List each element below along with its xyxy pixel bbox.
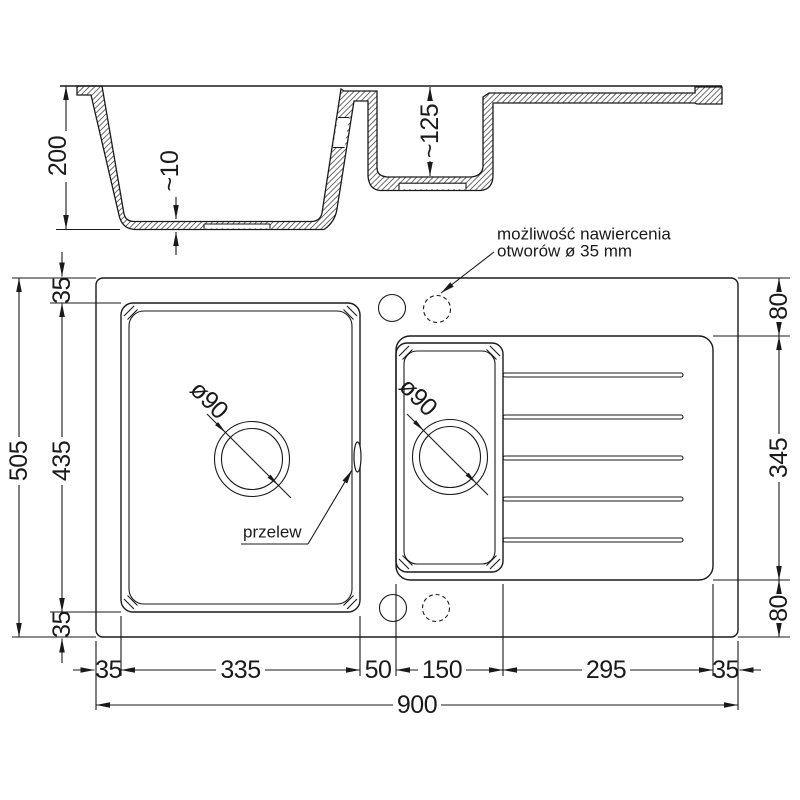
drill-note: możliwość nawiercenia otworów ø 35 mm <box>441 225 671 294</box>
dimension-rim-bottom: 35 <box>48 611 76 663</box>
dim-rim-bottom-label: 35 <box>48 611 76 638</box>
dimension-height-total: 505 <box>5 278 33 637</box>
dim-divider-width-label: 50 <box>365 656 392 684</box>
dimension-drainer-height: 345 <box>765 336 793 580</box>
dimension-bottom-thickness: ~10 <box>156 151 184 255</box>
dimension-drainer-width: 295 <box>503 656 713 684</box>
large-bowl-corner-facets <box>124 306 357 609</box>
dimension-small-bowl-width: 150 <box>396 656 503 684</box>
dimension-small-bowl-depth: ~125 <box>416 87 444 176</box>
dimension-large-bowl-width: 335 <box>121 656 360 684</box>
drill-note-line2: otworów ø 35 mm <box>497 242 632 261</box>
dim-rim-top-label: 35 <box>48 277 76 304</box>
dimensions-right: 80 345 80 <box>713 278 793 637</box>
faucet-hole-top <box>379 295 406 322</box>
section-small-drain-recess <box>399 183 466 189</box>
technical-drawing: 200 ~10 ~125 możliwość nawiercenia otwor… <box>0 0 800 800</box>
drainer-region: ø90 <box>393 336 713 580</box>
drainer-grooves <box>503 373 683 542</box>
large-drain-label: ø90 <box>184 375 233 424</box>
dimensions-left: 505 435 35 35 <box>5 252 121 663</box>
dim-small-bowl-depth-label: ~125 <box>416 104 444 158</box>
dimension-bowl-height: 435 <box>48 303 76 612</box>
dim-small-bowl-width-label: 150 <box>422 656 462 684</box>
drill-note-leader <box>441 252 494 293</box>
optional-hole-top <box>424 296 451 323</box>
faucet-hole-bottom <box>380 595 407 622</box>
dimension-right-bottom: 80 <box>765 580 793 637</box>
dim-width-total-label: 900 <box>397 691 437 719</box>
sink-outline <box>96 278 738 637</box>
sink-technical-drawing-canvas: 200 ~10 ~125 możliwość nawiercenia otwor… <box>0 0 800 800</box>
optional-hole-bottom <box>423 595 450 622</box>
dimension-rim-left: 35 <box>73 656 122 684</box>
small-drain-label: ø90 <box>393 372 442 421</box>
dim-drainer-height-label: 345 <box>765 438 793 478</box>
overflow-label: przelew <box>243 523 302 542</box>
section-large-drain-recess <box>204 224 270 229</box>
overflow-callout: przelew <box>241 470 352 544</box>
dim-height-total-label: 505 <box>5 441 33 481</box>
dimension-rim-right: 35 <box>712 656 761 684</box>
dimension-right-top: 80 <box>765 278 793 336</box>
large-bowl-inner-rim <box>129 311 352 604</box>
dim-drainer-width-label: 295 <box>586 656 626 684</box>
dim-right-top-label: 80 <box>765 293 793 320</box>
dimension-rim-top: 35 <box>48 252 76 304</box>
dimension-width-total: 900 <box>96 691 738 719</box>
large-bowl: ø90 przelew <box>121 303 361 612</box>
dim-rim-left-label: 35 <box>95 656 122 684</box>
dimension-divider-width: 50 <box>365 656 392 684</box>
overflow-slot <box>354 442 361 472</box>
large-bowl-outer-rim <box>121 303 360 612</box>
dimension-depth-200: 200 <box>44 86 72 229</box>
plan-view: ø90 przelew ø90 <box>5 252 793 719</box>
dim-rim-right-label: 35 <box>712 656 739 684</box>
dim-depth-label: 200 <box>44 136 72 176</box>
dim-right-bottom-label: 80 <box>765 595 793 622</box>
dim-bottom-thickness-label: ~10 <box>156 151 184 192</box>
dim-large-bowl-width-label: 335 <box>220 656 260 684</box>
dim-bowl-height-label: 435 <box>48 441 76 481</box>
